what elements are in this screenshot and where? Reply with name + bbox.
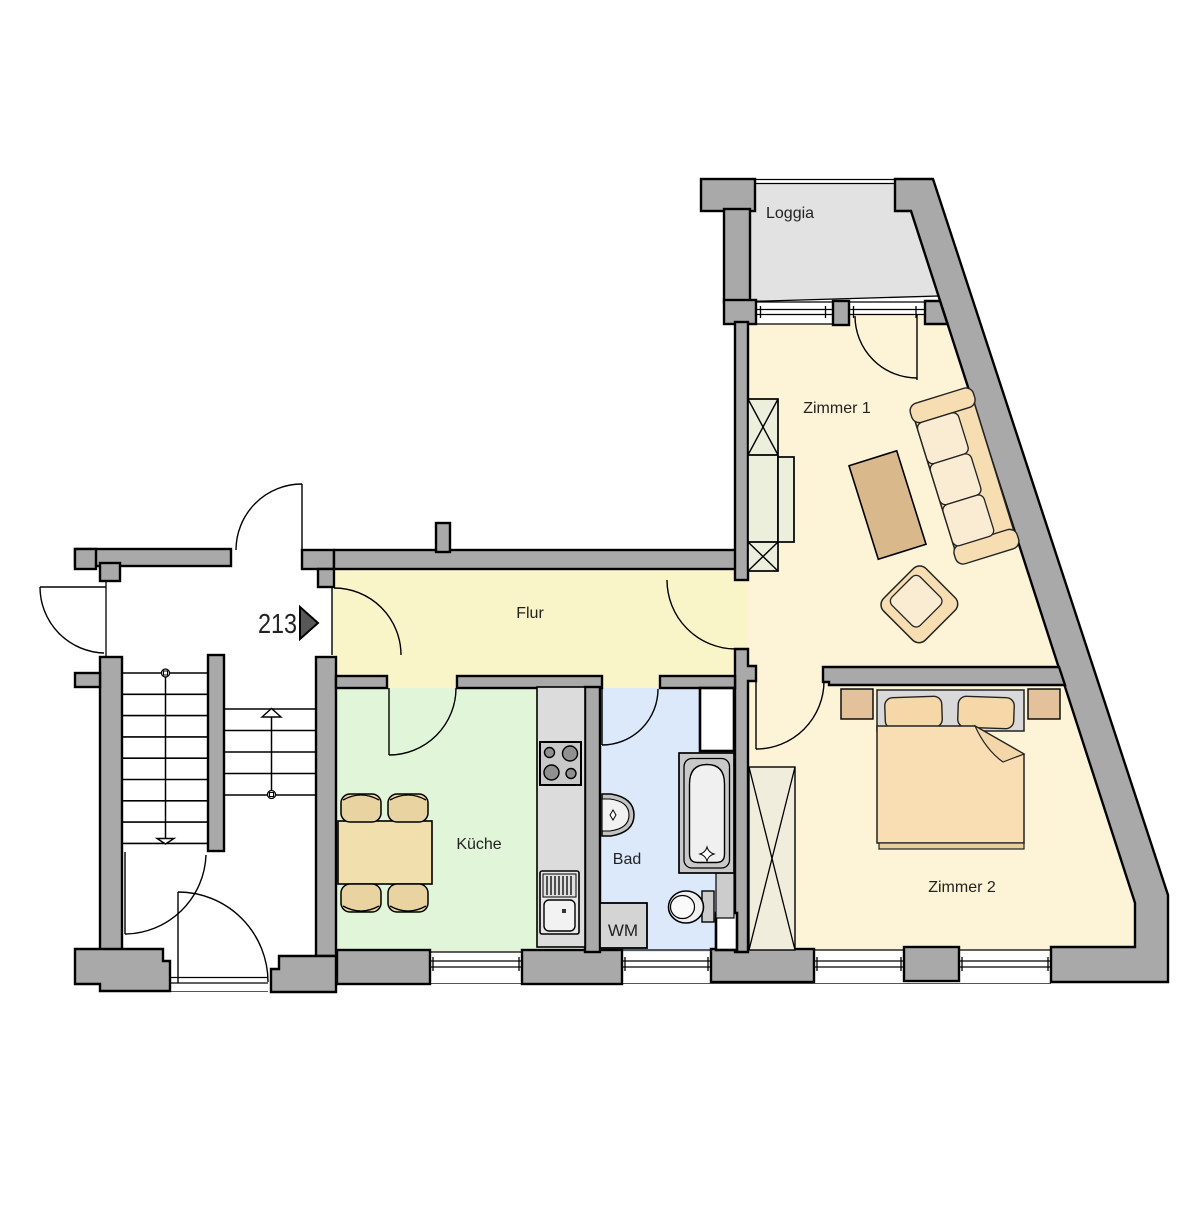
svg-text:Zimmer 1: Zimmer 1: [803, 400, 871, 417]
svg-text:Zimmer 2: Zimmer 2: [928, 879, 996, 896]
svg-text:Küche: Küche: [456, 836, 501, 853]
svg-text:WM: WM: [608, 921, 638, 940]
svg-text:Loggia: Loggia: [766, 205, 814, 222]
svg-text:Bad: Bad: [613, 851, 641, 868]
svg-text:213: 213: [258, 608, 297, 639]
svg-text:Flur: Flur: [516, 605, 544, 622]
